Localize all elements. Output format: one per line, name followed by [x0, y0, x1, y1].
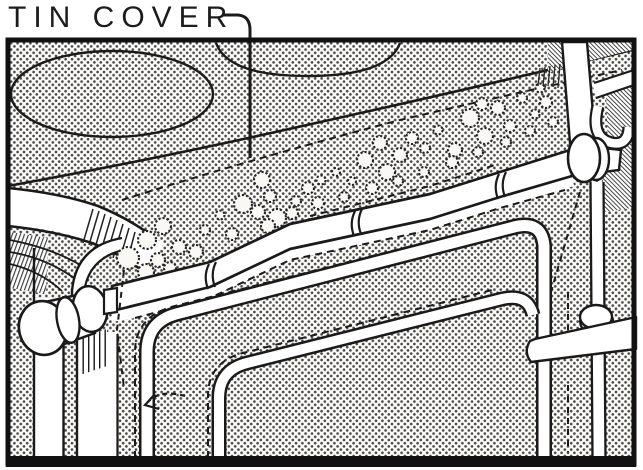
svg-text:TIN COVER: TIN COVER [8, 1, 234, 34]
